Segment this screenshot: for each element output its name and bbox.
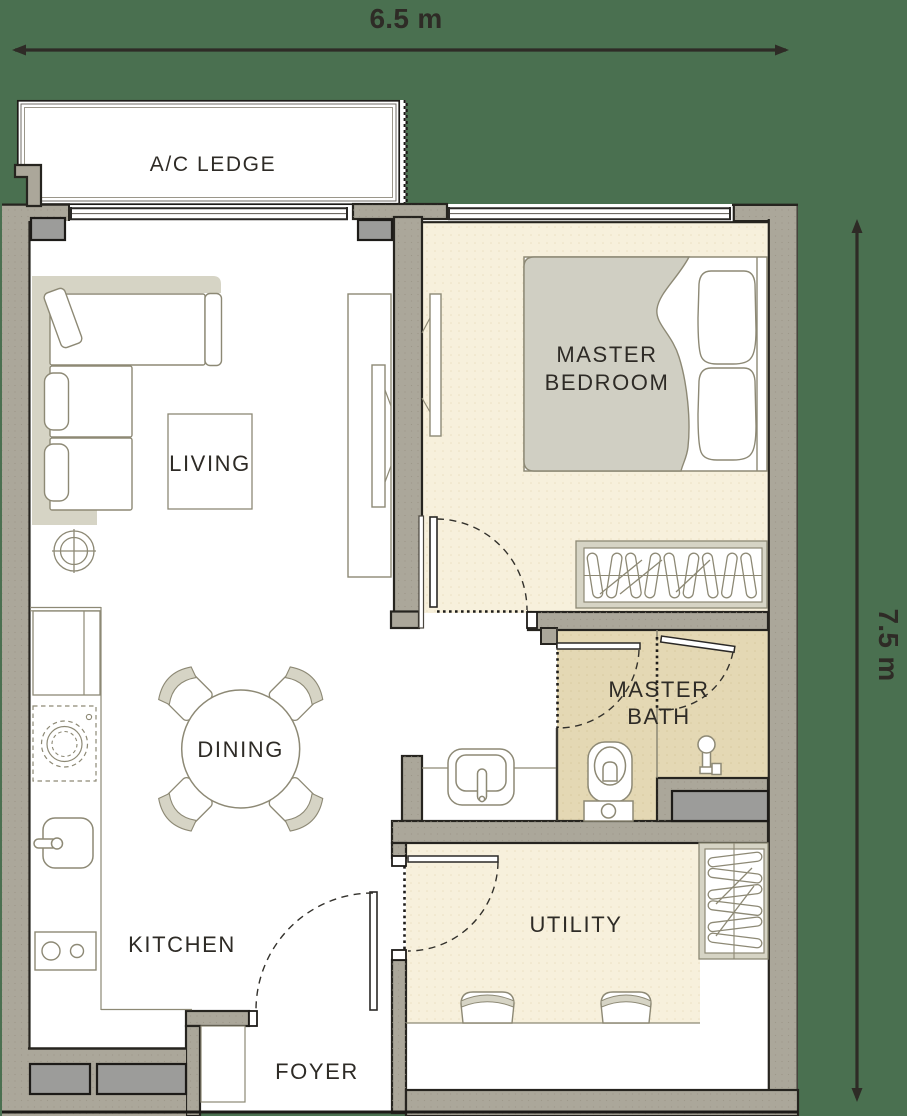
svg-text:LIVING: LIVING [169,451,251,476]
svg-text:BATH: BATH [627,704,690,729]
svg-text:6.5 m: 6.5 m [369,3,442,34]
svg-text:7.5 m: 7.5 m [873,608,904,681]
svg-text:KITCHEN: KITCHEN [128,932,236,957]
svg-text:FOYER: FOYER [275,1059,359,1084]
svg-text:MASTER: MASTER [608,677,709,702]
svg-text:DINING: DINING [197,737,284,762]
svg-text:A/C LEDGE: A/C LEDGE [150,153,276,176]
svg-text:UTILITY: UTILITY [529,912,622,937]
svg-text:BEDROOM: BEDROOM [545,370,670,395]
svg-text:MASTER: MASTER [556,342,657,367]
